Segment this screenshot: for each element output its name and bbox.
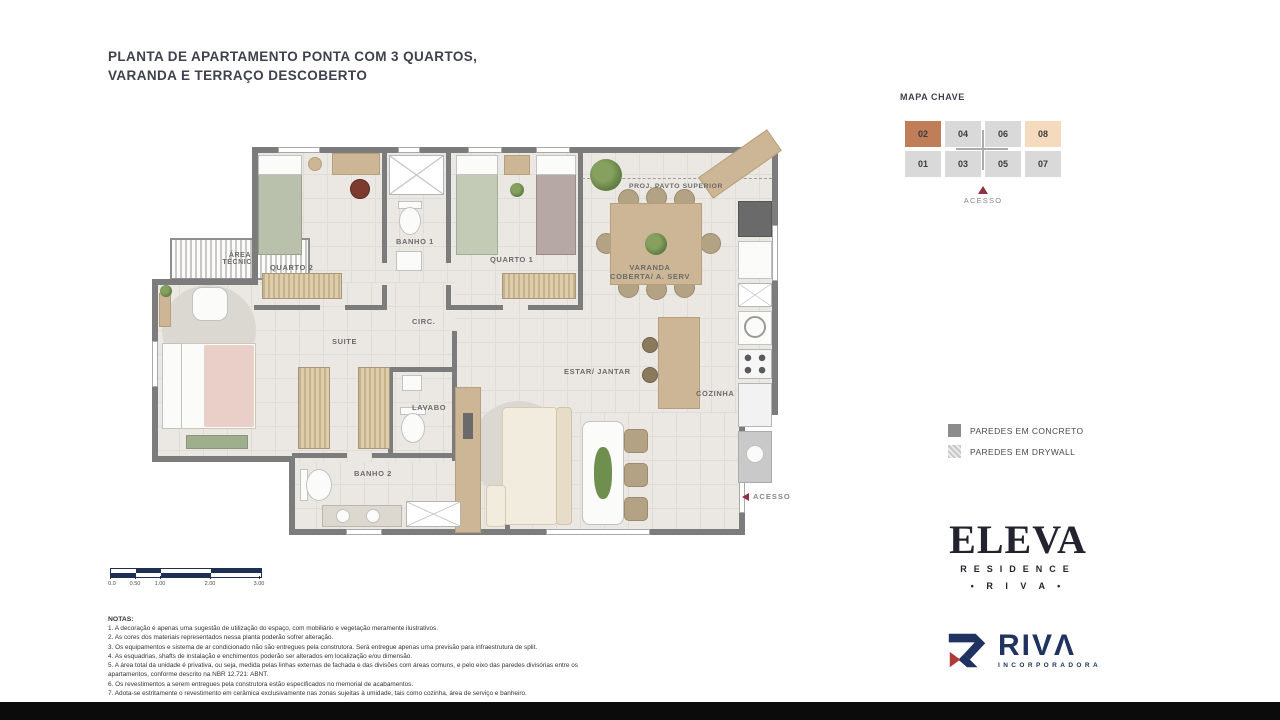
table-runner-plant: [594, 447, 612, 499]
banho1-sink: [396, 251, 422, 271]
legend-concrete-label: PAREDES EM CONCRETO: [970, 426, 1084, 436]
island-stool: [642, 337, 658, 353]
island-stool: [642, 367, 658, 383]
service-cabinet: [738, 283, 772, 307]
wall-corridor-b: [345, 305, 387, 310]
riva-logo-mark-icon: [944, 627, 990, 673]
window-quarto1-a: [468, 147, 502, 153]
sofa-seat: [502, 407, 558, 525]
unit-06: 06: [984, 120, 1022, 148]
notes-heading: NOTAS:: [108, 616, 578, 623]
legend-item-drywall: PAREDES EM DRYWALL: [948, 445, 1084, 458]
wall-q2-banho1-a: [382, 147, 387, 263]
quarto2-bed-pillow: [258, 155, 302, 175]
wall-lavabo-top: [388, 367, 452, 372]
tv: [463, 413, 473, 439]
quarto1-bed-b-pillow: [536, 155, 576, 175]
drywall-swatch-icon: [948, 445, 961, 458]
sofa-chaise: [486, 485, 506, 527]
banho2-sink: [366, 509, 380, 523]
page-title: PLANTA DE APARTAMENTO PONTA COM 3 QUARTO…: [108, 48, 477, 86]
page-title-line1: PLANTA DE APARTAMENTO PONTA COM 3 QUARTO…: [108, 48, 477, 67]
suite-shelf: [159, 293, 171, 327]
label-lavabo: LAVABO: [412, 403, 446, 412]
label-banho1: BANHO 1: [396, 237, 434, 246]
suite-bench: [186, 435, 248, 449]
wall-left-lower: [289, 459, 295, 535]
page-title-line2: VARANDA E TERRAÇO DESCOBERTO: [108, 67, 477, 86]
scale-label-200: 2.00: [205, 581, 216, 587]
wall-corridor-a: [254, 305, 320, 310]
unit-01: 01: [904, 150, 942, 178]
quarto2-wardrobe: [262, 273, 342, 299]
window-quarto2: [278, 147, 320, 153]
scale-label-050: 0.50: [130, 581, 141, 587]
riva-incorporadora-logo: RIVΛ INCORPORADORA: [944, 627, 1101, 673]
laundry-tank: [738, 201, 772, 237]
riva-wordmark: RIVΛ: [998, 631, 1101, 661]
wall-q1-right: [578, 147, 583, 310]
banho1-toilet: [399, 207, 421, 235]
sofa-back: [556, 407, 572, 525]
mapa-chave-title: MAPA CHAVE: [900, 92, 1070, 102]
plan-acesso-label: ACESSO: [753, 492, 791, 501]
wall-banho1-q1-a: [446, 147, 451, 263]
label-varanda-line1: VARANDA: [580, 263, 720, 272]
label-quarto2: QUARTO 2: [270, 263, 313, 272]
note-item: 3. Os equipamentos e sistema de ar condi…: [108, 643, 578, 652]
quarto1-nightstand: [504, 155, 530, 175]
footer-bar: [0, 702, 1280, 720]
label-banho2: BANHO 2: [354, 469, 392, 478]
suite-bed-blanket: [204, 345, 254, 427]
label-estar-jantar: ESTAR/ JANTAR: [564, 367, 631, 376]
banho1-shower: [389, 155, 444, 195]
acesso-arrow-icon: [742, 493, 749, 501]
quarto2-side-table: [308, 157, 322, 171]
wall-right-upper: [772, 147, 778, 415]
note-item: 5. A área total da unidade é privativa, …: [108, 661, 578, 680]
banho2-shower: [406, 501, 461, 527]
mapa-chave: MAPA CHAVE 02 04 06 08 01 03 05 07 ACESS…: [900, 92, 1070, 205]
eleva-riva-label: • R I V A •: [938, 581, 1098, 591]
window-suite: [152, 341, 158, 387]
note-item: 4. As esquadrias, shafts de instalação e…: [108, 652, 578, 661]
notes-block: NOTAS: 1. A decoração é apenas uma suges…: [108, 616, 578, 698]
concrete-swatch-icon: [948, 424, 961, 437]
dining-chair: [700, 233, 721, 254]
banho2-toilet: [306, 469, 332, 501]
eleva-logo: ELEVA RESIDENCE • R I V A •: [938, 520, 1098, 591]
kitchen-island: [658, 317, 700, 409]
label-suite: SUITE: [332, 337, 357, 346]
banho2-sink: [336, 509, 350, 523]
wall-top: [252, 147, 778, 153]
unit-05: 05: [984, 150, 1022, 178]
wall-banho2-top-a: [292, 453, 347, 458]
window-varanda: [772, 225, 778, 281]
mapa-acesso-arrow-icon: [978, 186, 988, 194]
unit-04: 04: [944, 120, 982, 148]
note-item: 1. A decoração é apenas uma sugestão de …: [108, 624, 578, 633]
dining-table-centerpiece: [645, 233, 667, 255]
scale-label-0: 0.0: [108, 581, 116, 587]
console-chair: [624, 463, 648, 487]
lavabo-sink: [402, 375, 422, 391]
mapa-acesso: ACESSO: [900, 186, 1066, 205]
quarto1-wardrobe: [502, 273, 576, 299]
plan-acesso: ACESSO: [742, 492, 791, 501]
scale-bar: 0.0 0.50 1.00 2.00 3.00: [110, 568, 262, 590]
stove: [738, 349, 772, 379]
console-chair: [624, 429, 648, 453]
eleva-wordmark: ELEVA: [938, 520, 1098, 560]
note-item: 2. As cores dos materiais representados …: [108, 633, 578, 642]
wall-suite-bottom: [152, 456, 295, 462]
suite-armchair: [192, 287, 228, 321]
wall-corridor-c: [451, 305, 503, 310]
quarto1-bed-a-pillow: [456, 155, 498, 175]
window-banho2: [346, 529, 382, 535]
label-proj-pavto: PROJ. PAVTO SUPERIOR: [580, 183, 772, 190]
legend-item-concrete: PAREDES EM CONCRETO: [948, 424, 1084, 437]
suite-plant: [160, 285, 172, 297]
lavabo-toilet: [401, 413, 425, 443]
eleva-residence-label: RESIDENCE: [938, 564, 1098, 574]
label-cozinha: COZINHA: [696, 389, 734, 398]
suite-wardrobe: [298, 367, 330, 449]
unit-03: 03: [944, 150, 982, 178]
kitchen-sink: [746, 445, 764, 463]
scale-label-100: 1.00: [155, 581, 166, 587]
unit-08: 08: [1024, 120, 1062, 148]
banho2-vanity: [322, 505, 402, 527]
key-map-building: 02 04 06 08 01 03 05 07: [900, 118, 1066, 178]
window-quarto1-b: [536, 147, 570, 153]
riva-incorporadora-label: INCORPORADORA: [998, 662, 1101, 669]
floor-plan: ÁREA TÉCNICA: [150, 145, 790, 545]
note-item: 6. Os revestimentos a serem entregues pe…: [108, 680, 578, 689]
wall-legend: PAREDES EM CONCRETO PAREDES EM DRYWALL: [948, 424, 1084, 466]
unit-07: 07: [1024, 150, 1062, 178]
wall-corridor-d: [528, 305, 583, 310]
door-estar-slider: [546, 529, 650, 535]
legend-drywall-label: PAREDES EM DRYWALL: [970, 447, 1075, 457]
quarto2-desk: [332, 153, 380, 175]
fridge: [738, 383, 772, 427]
label-varanda-line2: COBERTA/ A. SERV: [580, 272, 720, 281]
mapa-acesso-label: ACESSO: [900, 196, 1066, 205]
quarto1-plant: [510, 183, 524, 197]
note-item: 7. Adota-se estritamente o revestimento …: [108, 689, 578, 698]
scale-bar-strip: [110, 568, 262, 578]
suite-bed-pillows: [162, 343, 182, 429]
laundry-sink: [738, 241, 772, 279]
label-varanda: VARANDA COBERTA/ A. SERV: [580, 263, 720, 281]
label-quarto1: QUARTO 1: [490, 255, 533, 264]
scale-label-300: 3.00: [254, 581, 265, 587]
console-chair: [624, 497, 648, 521]
window-banho1: [398, 147, 420, 153]
washing-machine-drum: [744, 316, 766, 338]
label-circ: CIRC.: [412, 317, 435, 326]
unit-02: 02: [904, 120, 942, 148]
suite-wardrobe: [358, 367, 390, 449]
quarto2-chair: [350, 179, 370, 199]
